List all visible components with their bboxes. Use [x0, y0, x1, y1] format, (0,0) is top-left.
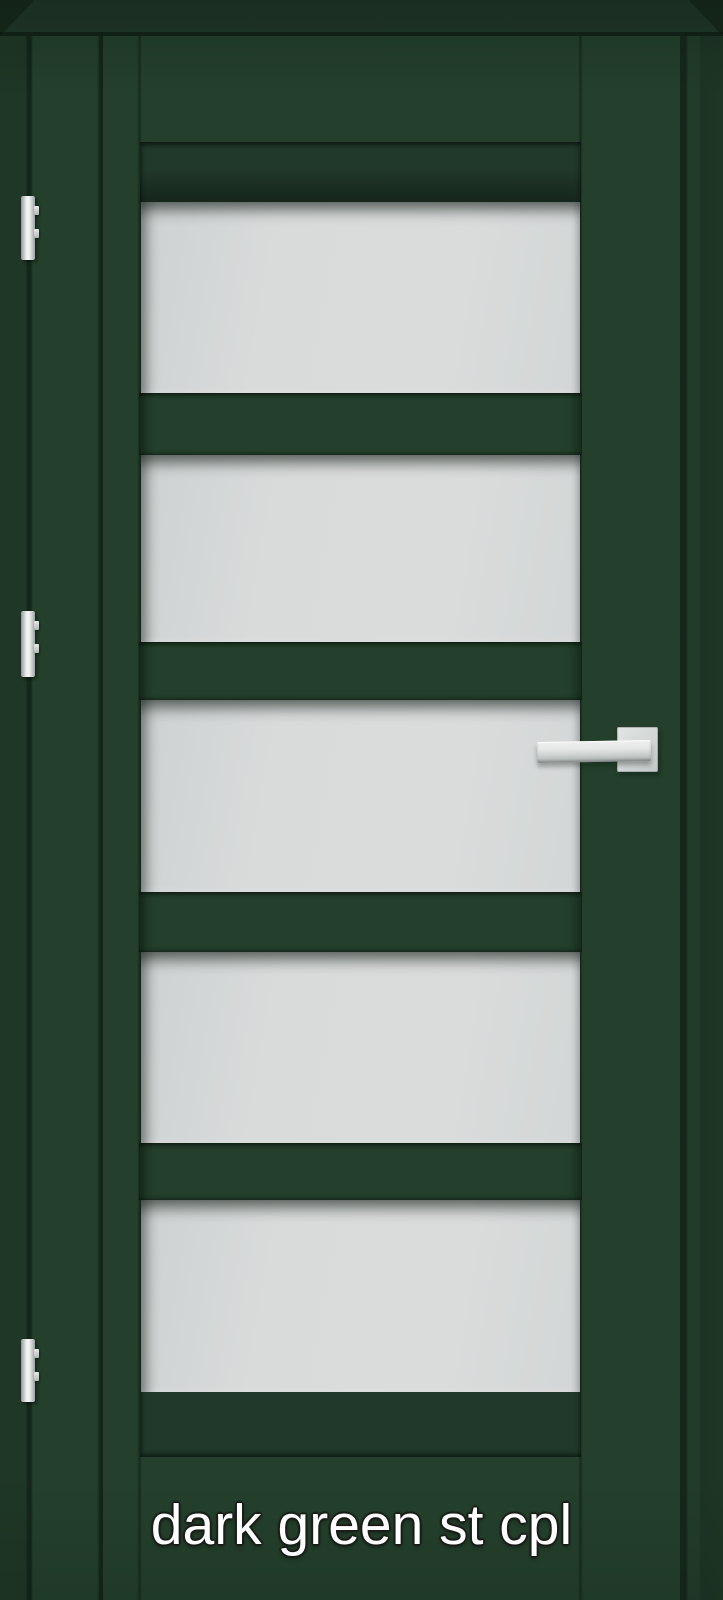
glass-panel: [141, 700, 580, 892]
door-frame-left-jamb: [0, 36, 103, 1600]
frame-miter-corner-left: [0, 0, 34, 36]
muntin-rail: [139, 892, 582, 952]
door-hinge-bottom: [21, 1339, 35, 1402]
door-hinge-top: [21, 196, 35, 260]
glass-panel: [141, 455, 580, 642]
glass-panel: [141, 1200, 580, 1392]
glazing-recess-shadow: [140, 168, 581, 202]
door-product-photo: dark green st cpl: [0, 0, 723, 1600]
door-hinge-middle: [21, 611, 35, 677]
glass-panel: [141, 202, 580, 393]
door-frame-right-jamb: [680, 36, 723, 1600]
door-frame-header: [0, 0, 723, 36]
glass-panel: [141, 952, 580, 1143]
product-caption: dark green st cpl: [0, 1494, 723, 1557]
frame-miter-corner-right: [689, 0, 723, 36]
muntin-rail: [139, 1143, 582, 1200]
muntin-rail: [139, 642, 582, 700]
door-handle-lever: [537, 740, 651, 763]
muntin-rail: [139, 393, 582, 455]
